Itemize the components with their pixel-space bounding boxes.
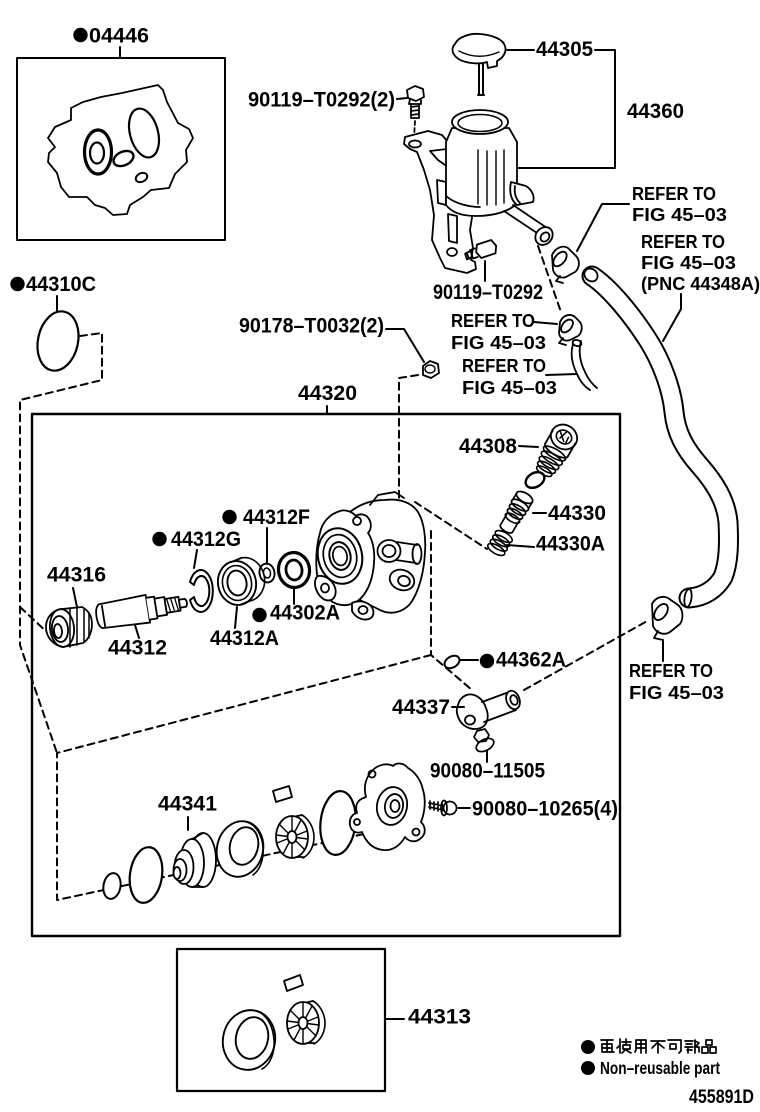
svg-text:44305: 44305 [536, 38, 593, 61]
svg-text:90080–11505: 90080–11505 [430, 760, 545, 783]
svg-text:455891D: 455891D [689, 1087, 754, 1108]
svg-text:FIG 45–03: FIG 45–03 [641, 253, 736, 273]
svg-text:REFER TO: REFER TO [632, 184, 716, 204]
svg-text:44330: 44330 [548, 502, 606, 525]
svg-text:44312: 44312 [108, 637, 167, 660]
svg-text:44312A: 44312A [210, 627, 279, 650]
svg-text:44308: 44308 [459, 435, 517, 458]
svg-text:FIG 45–03: FIG 45–03 [451, 333, 546, 353]
svg-text:44330A: 44330A [536, 533, 605, 556]
svg-text:44312F: 44312F [243, 506, 310, 529]
svg-text:REFER TO: REFER TO [641, 232, 725, 252]
svg-text:FIG 45–03: FIG 45–03 [629, 683, 724, 703]
svg-text:44362A: 44362A [496, 649, 566, 672]
svg-text:04446: 04446 [89, 25, 149, 48]
svg-text:REFER TO: REFER TO [629, 661, 713, 681]
svg-text:44302A: 44302A [270, 602, 340, 625]
svg-text:44312G: 44312G [171, 528, 241, 551]
svg-text:44320: 44320 [298, 382, 357, 405]
svg-text:44313: 44313 [408, 1006, 471, 1029]
svg-text:90119–T0292: 90119–T0292 [433, 281, 543, 304]
svg-text:Non–reusable part: Non–reusable part [600, 1058, 720, 1078]
svg-text:(PNC 44348A): (PNC 44348A) [641, 274, 760, 294]
svg-text:44341: 44341 [158, 793, 217, 816]
svg-text:90178–T0032(2): 90178–T0032(2) [239, 315, 384, 338]
svg-text:44360: 44360 [627, 100, 684, 123]
svg-text:FIG 45–03: FIG 45–03 [462, 378, 557, 398]
svg-text:FIG 45–03: FIG 45–03 [632, 205, 727, 225]
svg-text:44310C: 44310C [26, 273, 96, 296]
svg-text:44337: 44337 [392, 696, 450, 719]
svg-text:90119–T0292(2): 90119–T0292(2) [248, 89, 395, 112]
svg-text:90080–10265(4): 90080–10265(4) [472, 798, 618, 821]
svg-text:REFER TO: REFER TO [462, 356, 546, 376]
svg-text:44316: 44316 [47, 564, 106, 587]
svg-text:REFER TO: REFER TO [451, 311, 535, 331]
